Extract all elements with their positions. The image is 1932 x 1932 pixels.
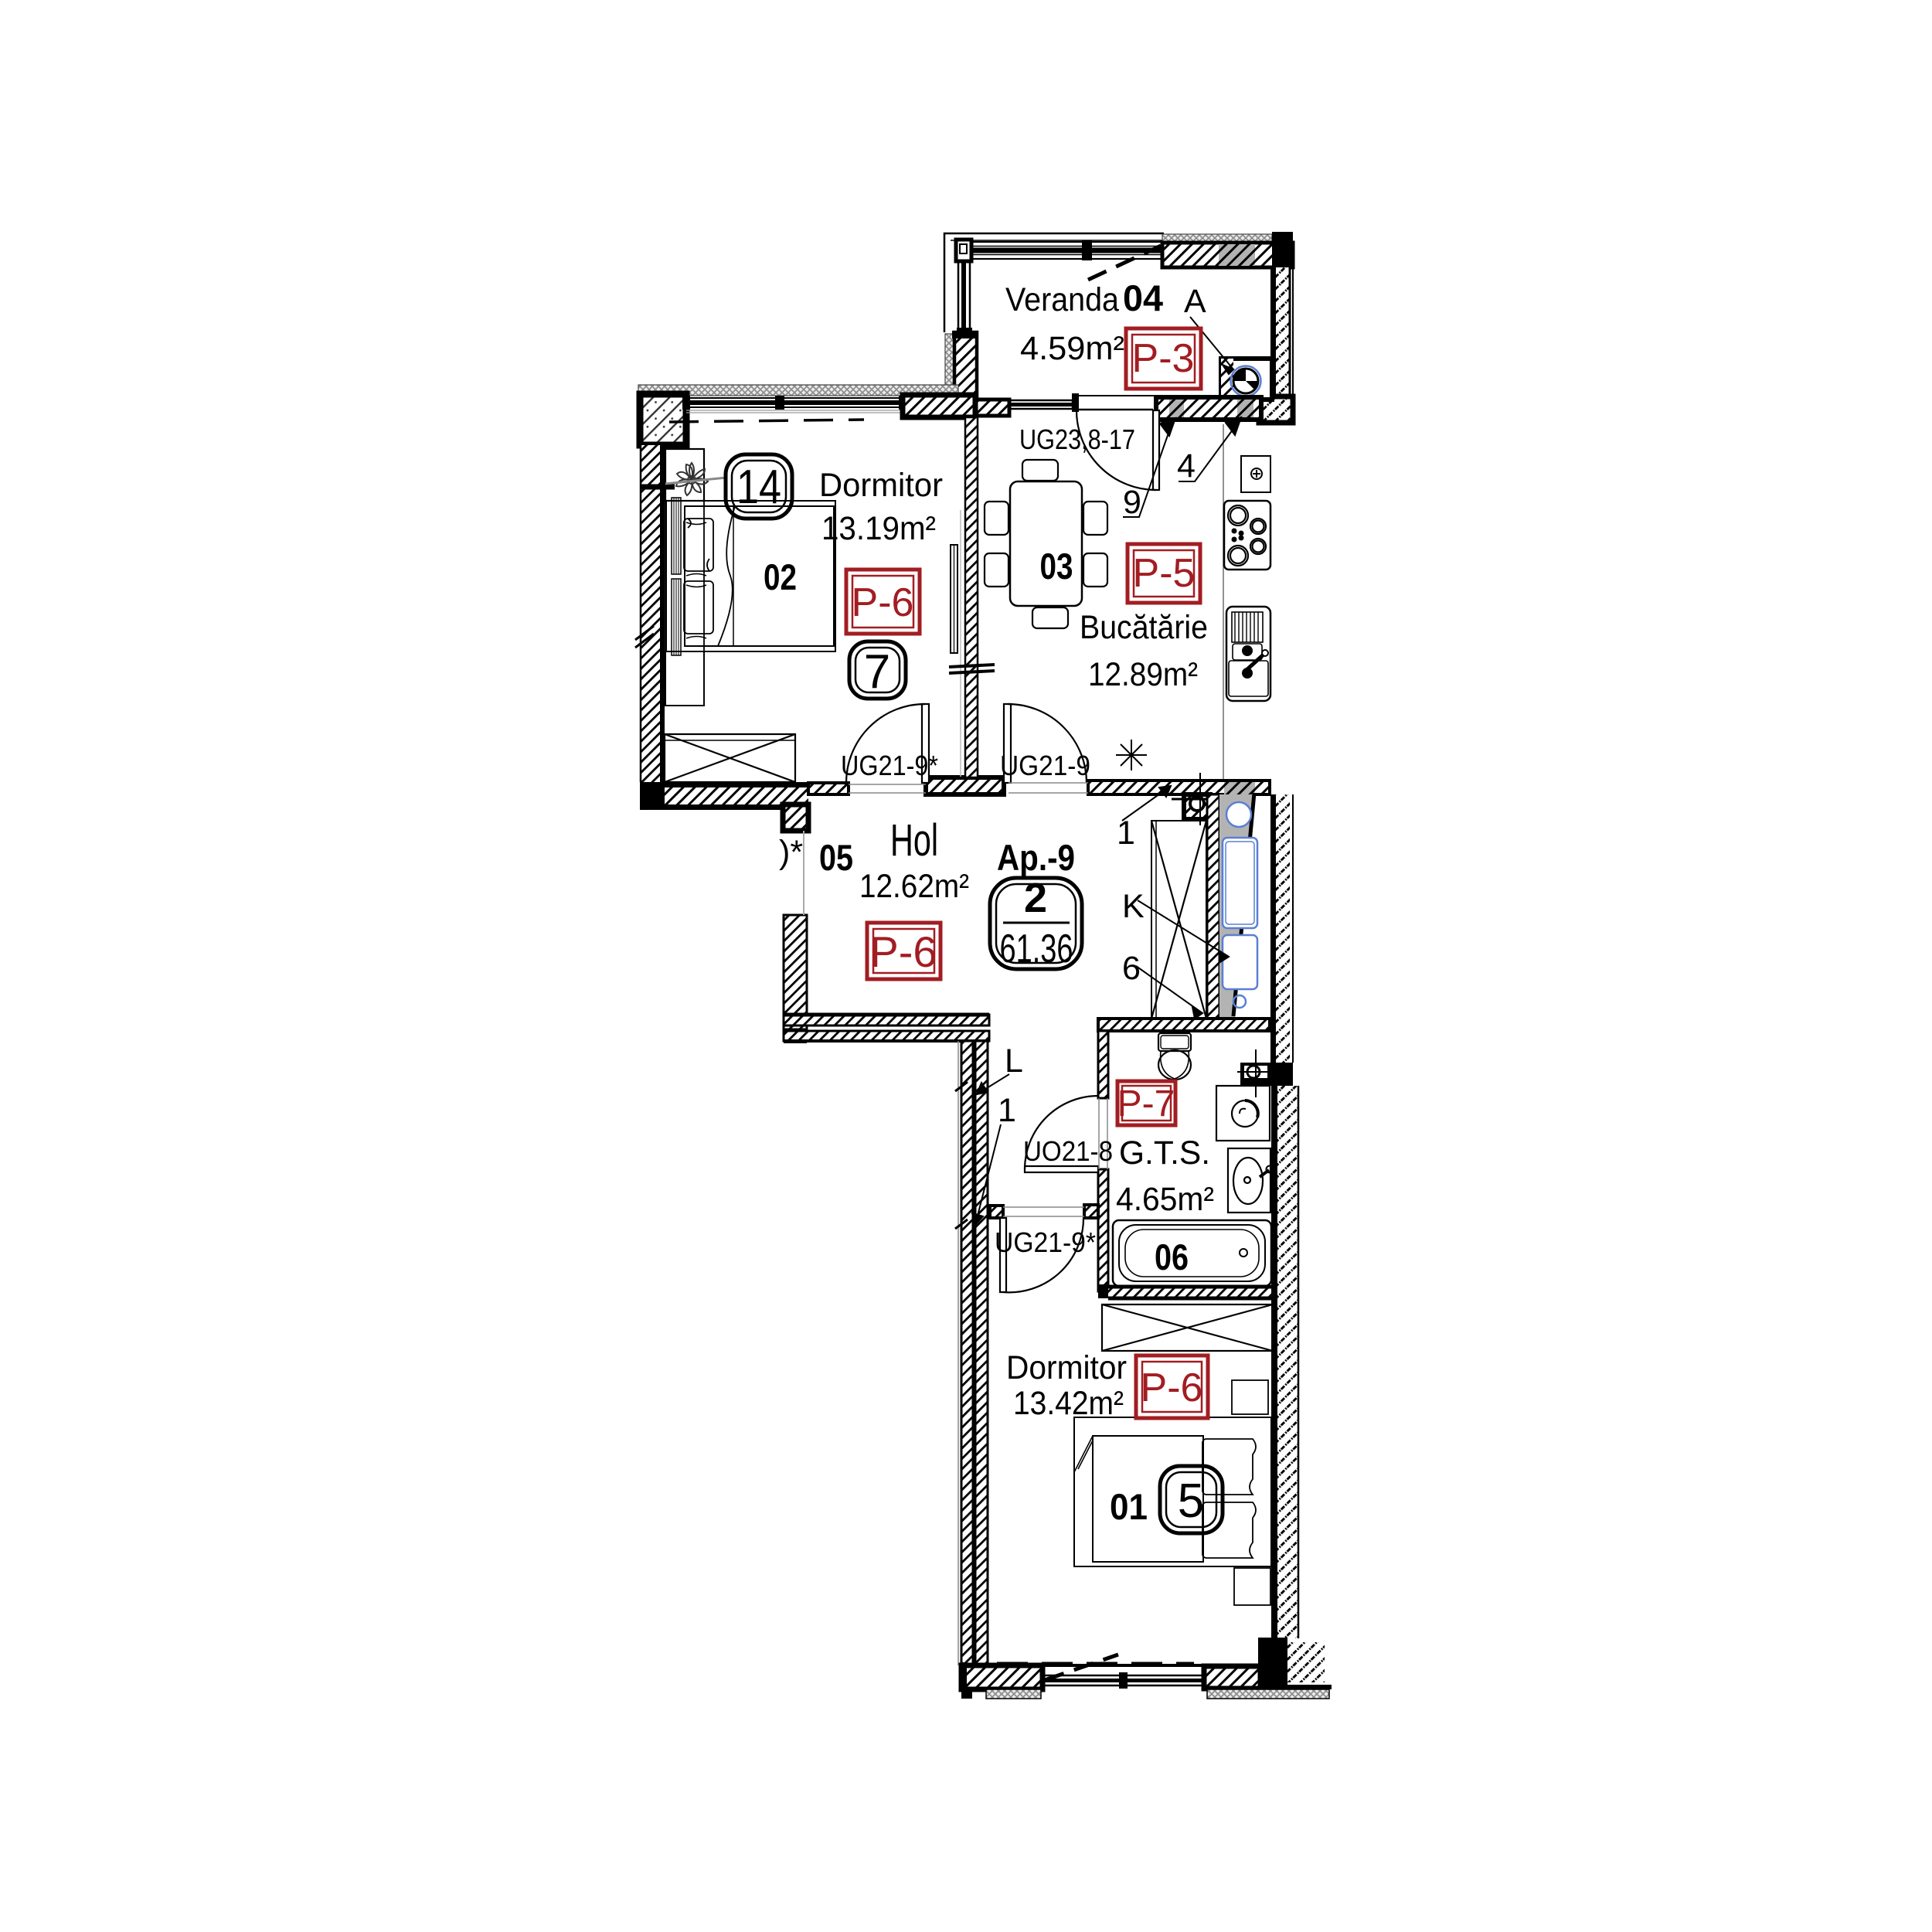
svg-text:UG21-9: UG21-9 [1000, 750, 1090, 781]
svg-text:06: 06 [1155, 1236, 1189, 1277]
svg-text:P-6: P-6 [869, 927, 937, 976]
svg-text:12.62m²: 12.62m² [859, 868, 969, 905]
svg-text:6: 6 [1122, 950, 1141, 987]
svg-text:)*: )* [779, 834, 803, 871]
svg-text:P-3: P-3 [1132, 336, 1195, 381]
svg-text:UG21-9*: UG21-9* [995, 1226, 1096, 1258]
svg-text:G.T.S.: G.T.S. [1119, 1134, 1210, 1172]
svg-text:04: 04 [1123, 277, 1163, 318]
svg-text:UG23,8-17: UG23,8-17 [1019, 423, 1135, 455]
svg-text:UG21-9*: UG21-9* [841, 750, 938, 781]
svg-text:K: K [1122, 888, 1145, 925]
svg-text:Dormitor: Dormitor [819, 467, 943, 504]
svg-text:1: 1 [1117, 815, 1135, 852]
svg-text:61.36: 61.36 [1000, 927, 1073, 971]
svg-text:12.89m²: 12.89m² [1088, 656, 1198, 693]
svg-text:5: 5 [1178, 1475, 1204, 1528]
svg-text:03: 03 [1040, 546, 1073, 587]
svg-text:Hol: Hol [890, 815, 938, 866]
svg-text:14: 14 [736, 461, 781, 514]
svg-text:13.19m²: 13.19m² [821, 510, 936, 547]
svg-text:13.42m²: 13.42m² [1013, 1385, 1124, 1422]
svg-text:9: 9 [1123, 484, 1141, 521]
svg-text:A: A [1184, 283, 1206, 320]
svg-text:P-6: P-6 [852, 580, 914, 625]
svg-text:Veranda: Veranda [1005, 281, 1119, 318]
svg-text:02: 02 [764, 556, 797, 597]
svg-text:Ap.-9: Ap.-9 [997, 837, 1075, 878]
svg-text:7: 7 [864, 645, 890, 699]
svg-text:1: 1 [998, 1092, 1016, 1129]
svg-text:P-6: P-6 [1141, 1366, 1203, 1410]
svg-text:05: 05 [819, 837, 853, 878]
svg-text:UO21-8: UO21-8 [1023, 1135, 1113, 1167]
svg-text:4: 4 [1177, 447, 1196, 485]
svg-text:4.65m²: 4.65m² [1116, 1181, 1214, 1218]
svg-text:P-7: P-7 [1117, 1083, 1175, 1124]
svg-text:01: 01 [1110, 1486, 1148, 1527]
svg-text:Bucătărie: Bucătărie [1080, 609, 1208, 646]
svg-text:4.59m²: 4.59m² [1020, 330, 1124, 367]
svg-text:P-5: P-5 [1133, 551, 1196, 596]
svg-text:2: 2 [1024, 875, 1047, 921]
svg-text:Dormitor: Dormitor [1006, 1349, 1127, 1386]
svg-text:L: L [1005, 1043, 1023, 1080]
